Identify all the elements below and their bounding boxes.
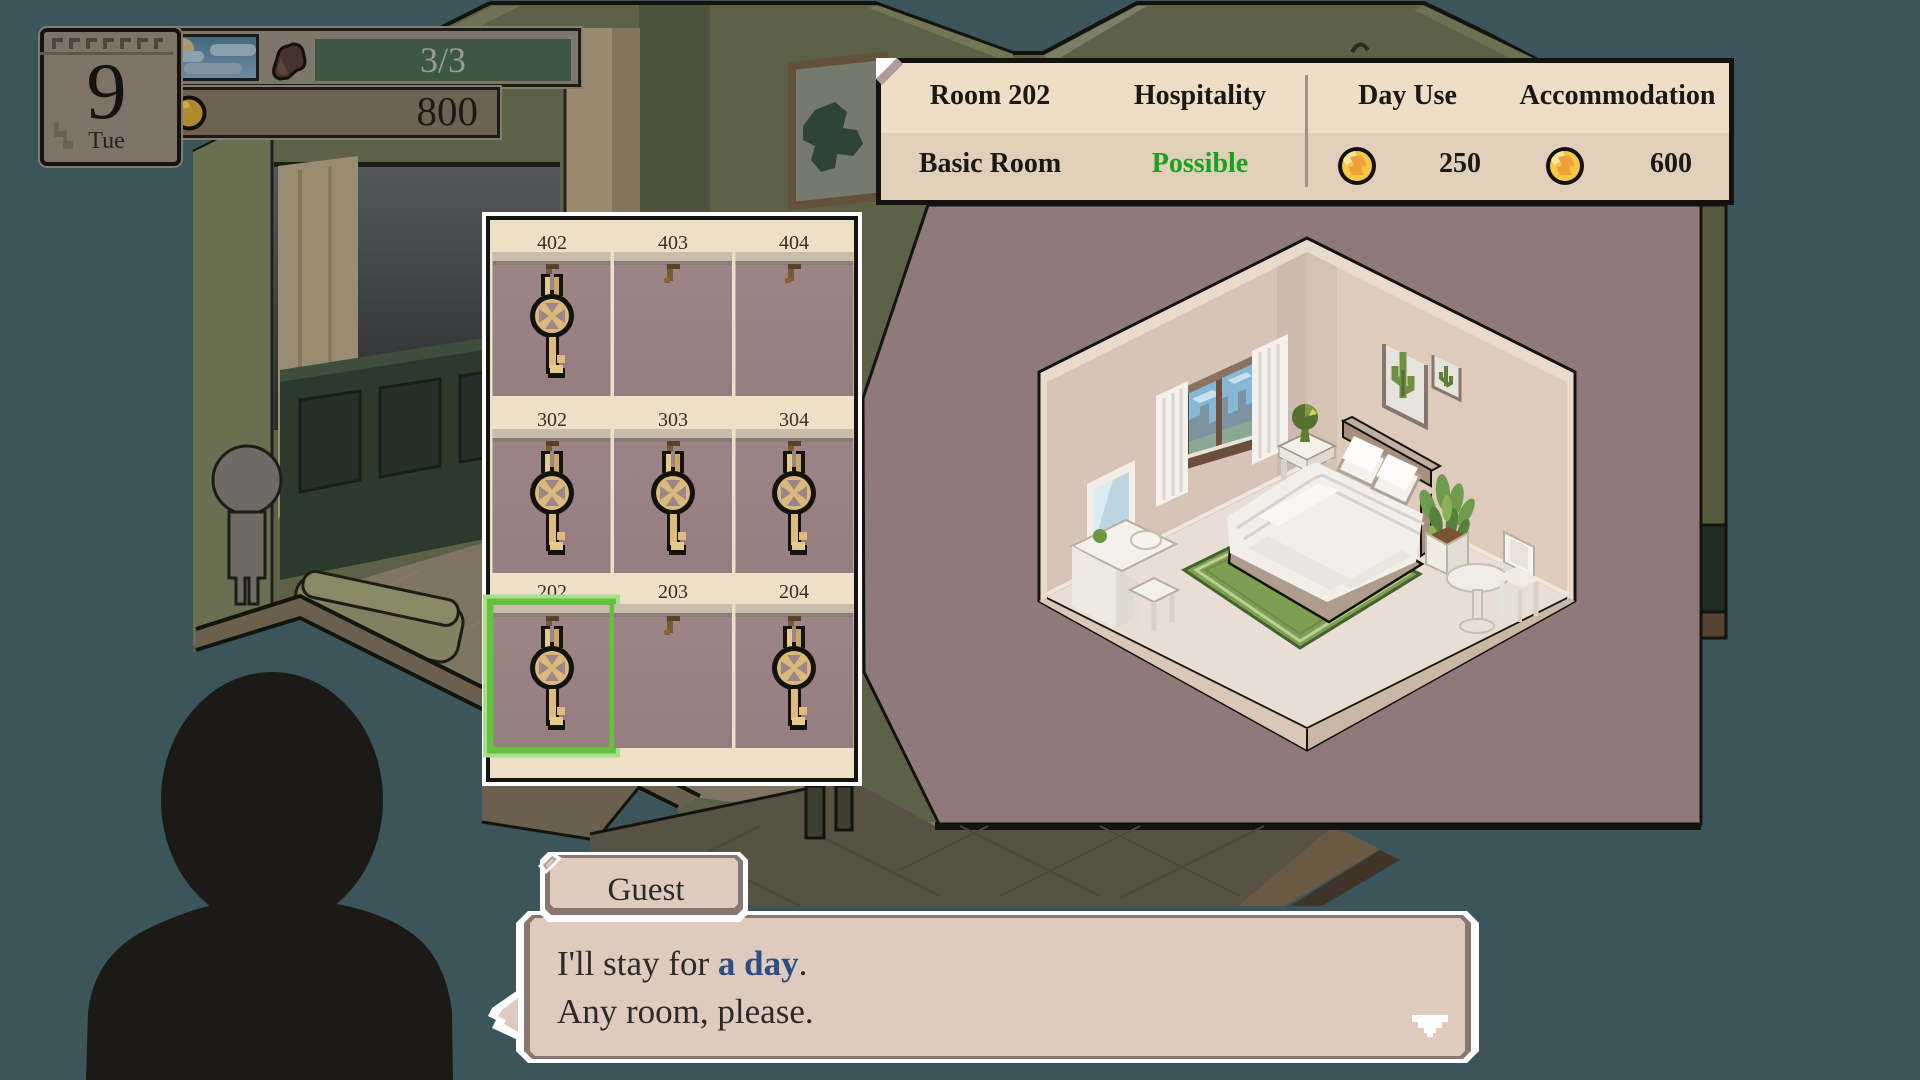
svg-text:303: 303	[658, 409, 688, 431]
svg-text:302: 302	[537, 409, 567, 431]
svg-text:304: 304	[779, 409, 809, 431]
svg-text:204: 204	[779, 581, 809, 603]
svg-text:404: 404	[779, 232, 809, 254]
svg-text:402: 402	[537, 232, 567, 254]
svg-text:403: 403	[658, 232, 688, 254]
svg-text:203: 203	[658, 581, 688, 603]
